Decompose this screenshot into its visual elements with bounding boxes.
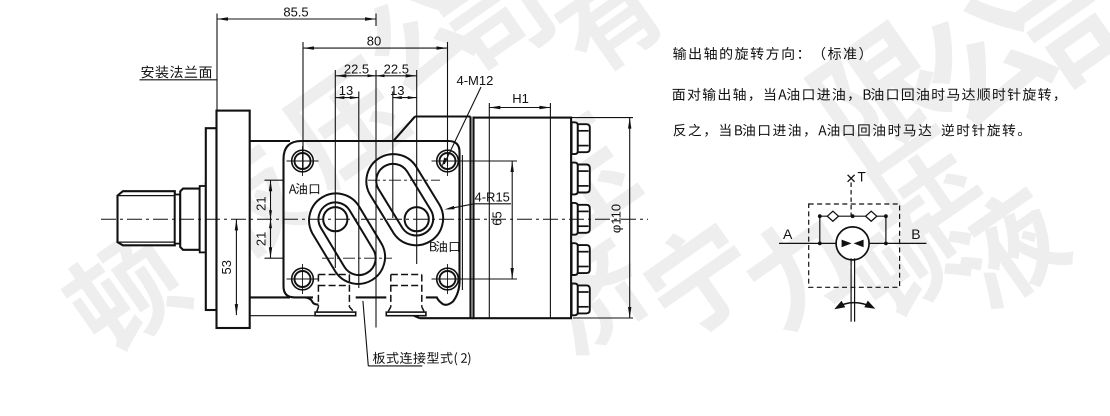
- svg-text:H1: H1: [512, 91, 529, 106]
- svg-text:T: T: [858, 169, 866, 184]
- svg-text:B: B: [911, 226, 920, 242]
- svg-text:A: A: [783, 226, 793, 242]
- svg-text:13: 13: [339, 83, 353, 98]
- svg-text:80: 80: [367, 34, 381, 49]
- svg-text:85.5: 85.5: [283, 5, 308, 20]
- svg-text:22.5: 22.5: [344, 61, 369, 76]
- svg-text:φ110: φ110: [609, 204, 624, 233]
- svg-text:4-M12: 4-M12: [457, 73, 494, 88]
- svg-text:22.5: 22.5: [384, 61, 409, 76]
- svg-text:53: 53: [219, 260, 234, 274]
- svg-text:21: 21: [254, 196, 269, 210]
- svg-text:4-R15: 4-R15: [475, 189, 510, 204]
- svg-text:65: 65: [490, 211, 505, 225]
- svg-text:21: 21: [254, 232, 269, 246]
- svg-text:13: 13: [390, 83, 404, 98]
